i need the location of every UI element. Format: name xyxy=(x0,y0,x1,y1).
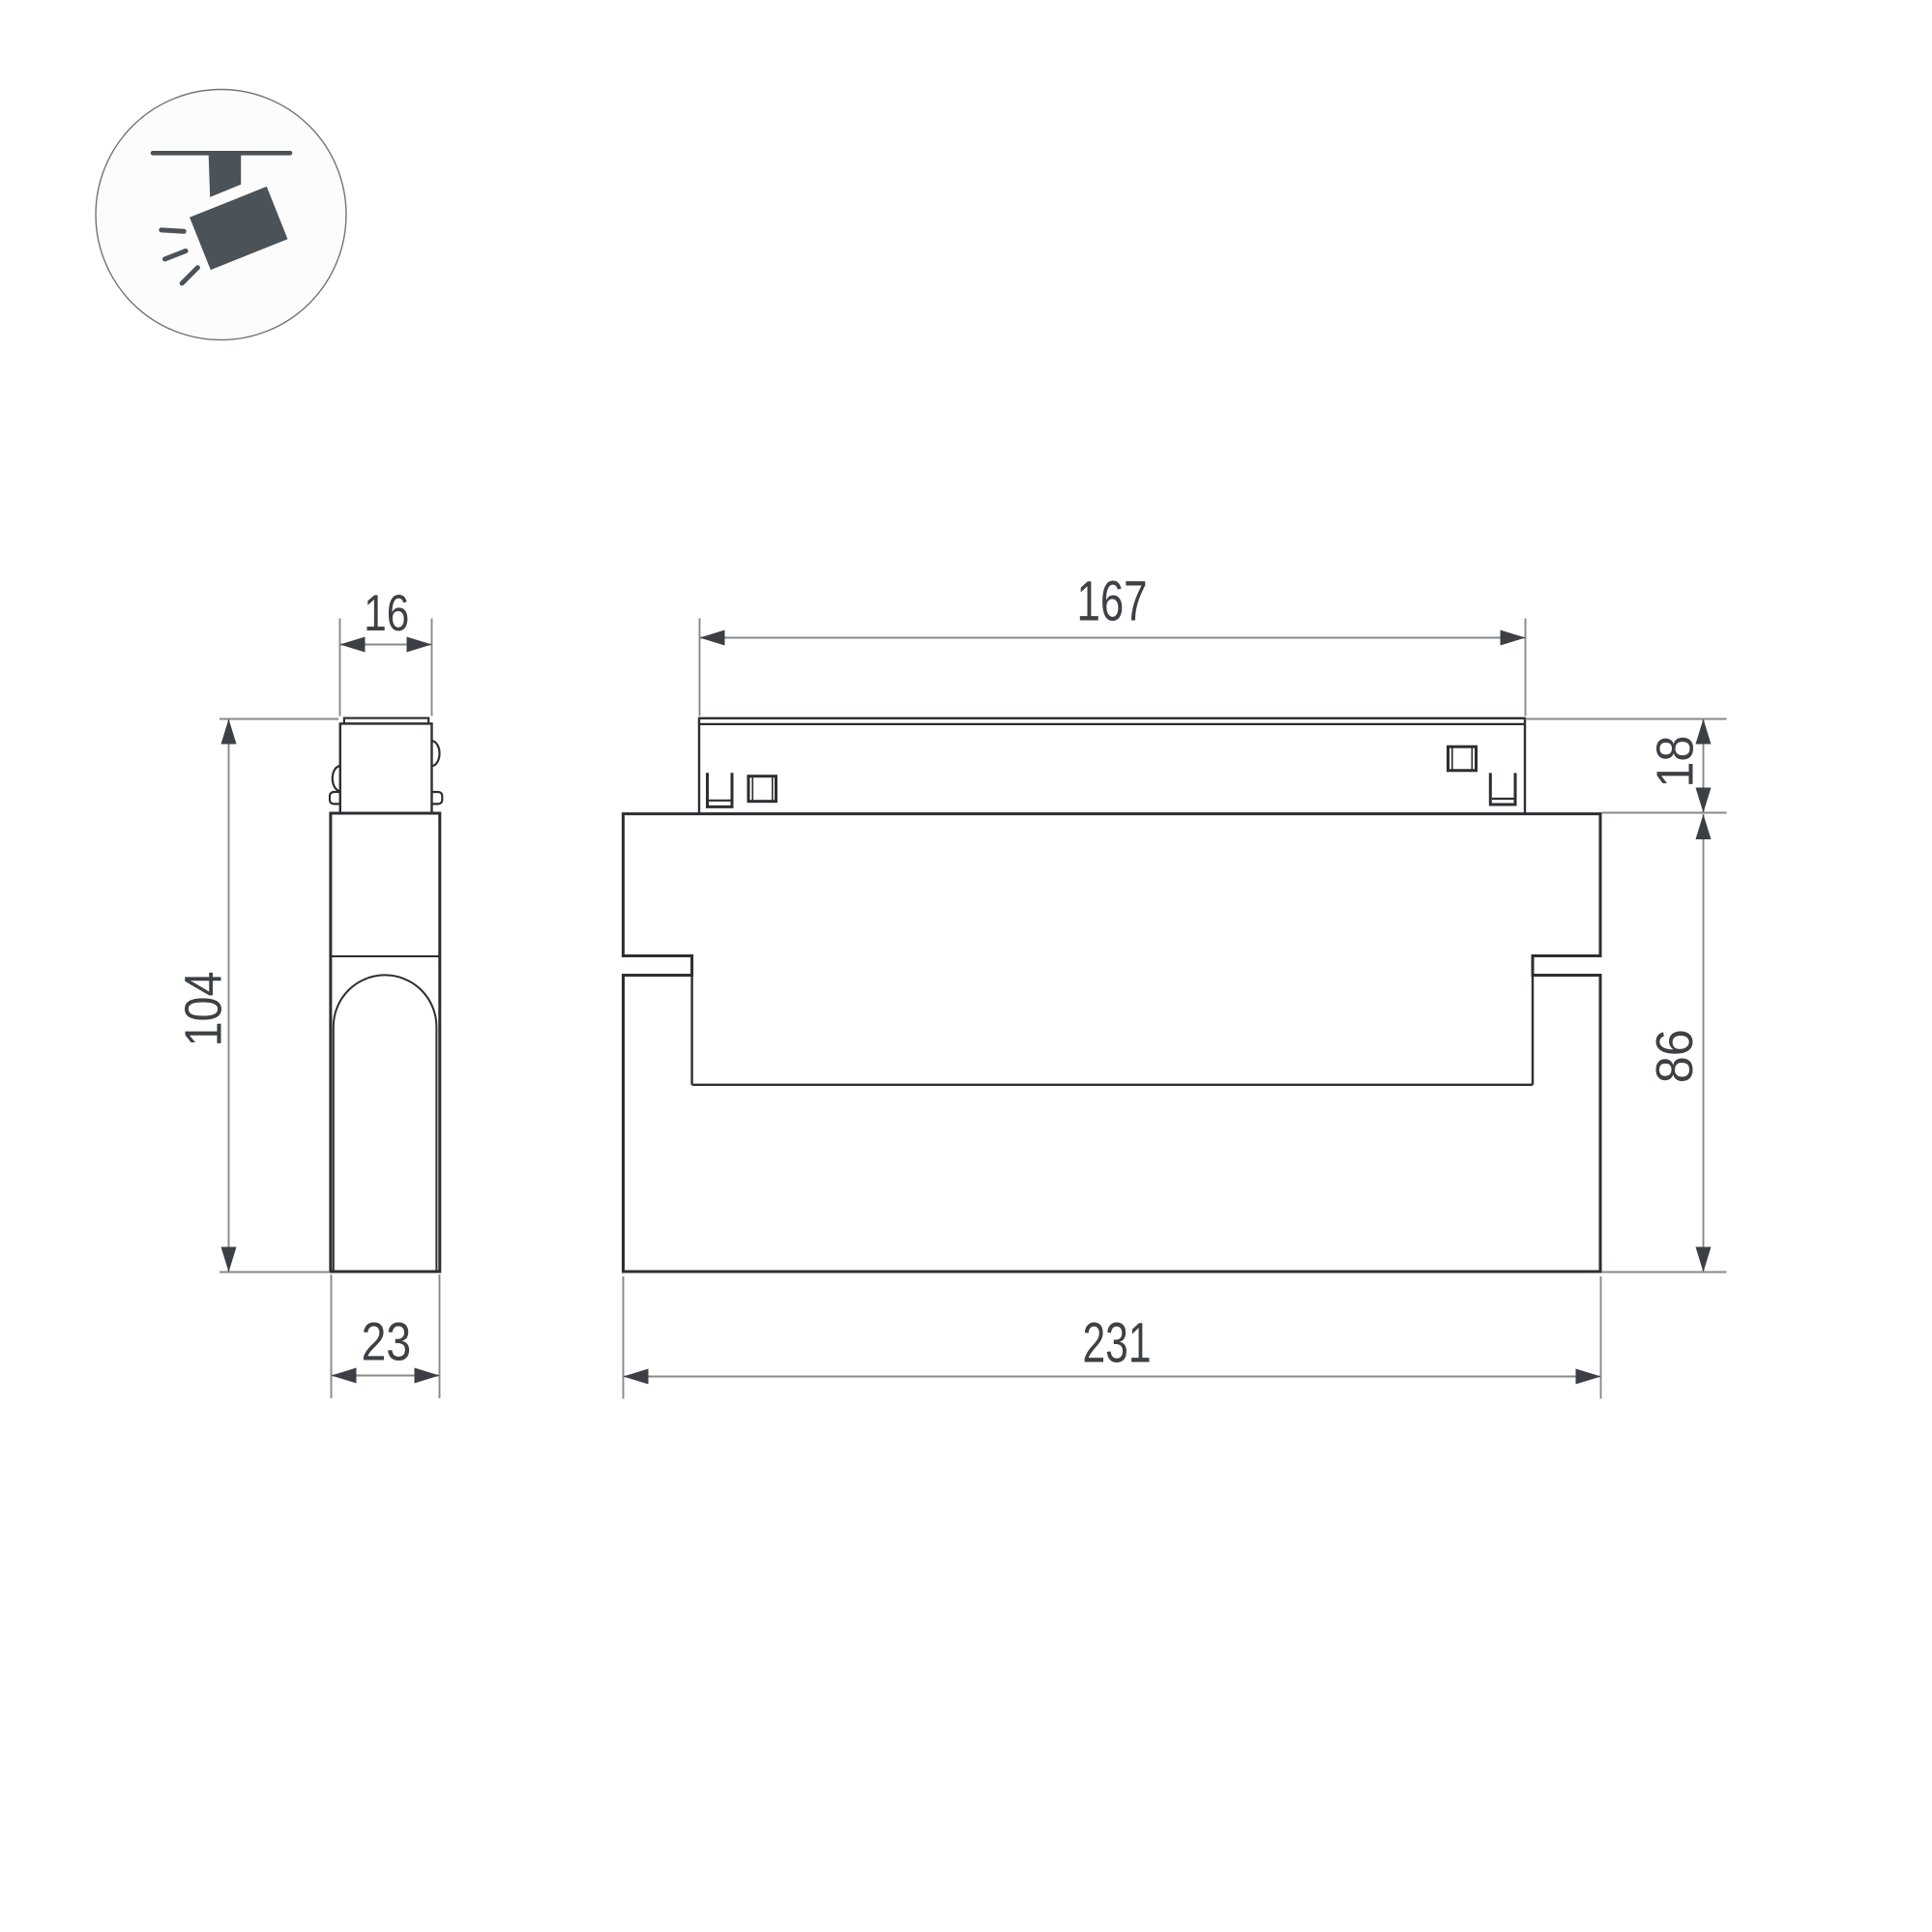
svg-text:231: 231 xyxy=(1083,1311,1152,1374)
svg-text:104: 104 xyxy=(175,972,233,1047)
svg-text:167: 167 xyxy=(1077,571,1148,633)
svg-text:16: 16 xyxy=(364,585,409,642)
svg-text:23: 23 xyxy=(362,1311,412,1372)
svg-text:18: 18 xyxy=(1647,736,1705,788)
svg-text:86: 86 xyxy=(1646,1029,1704,1083)
